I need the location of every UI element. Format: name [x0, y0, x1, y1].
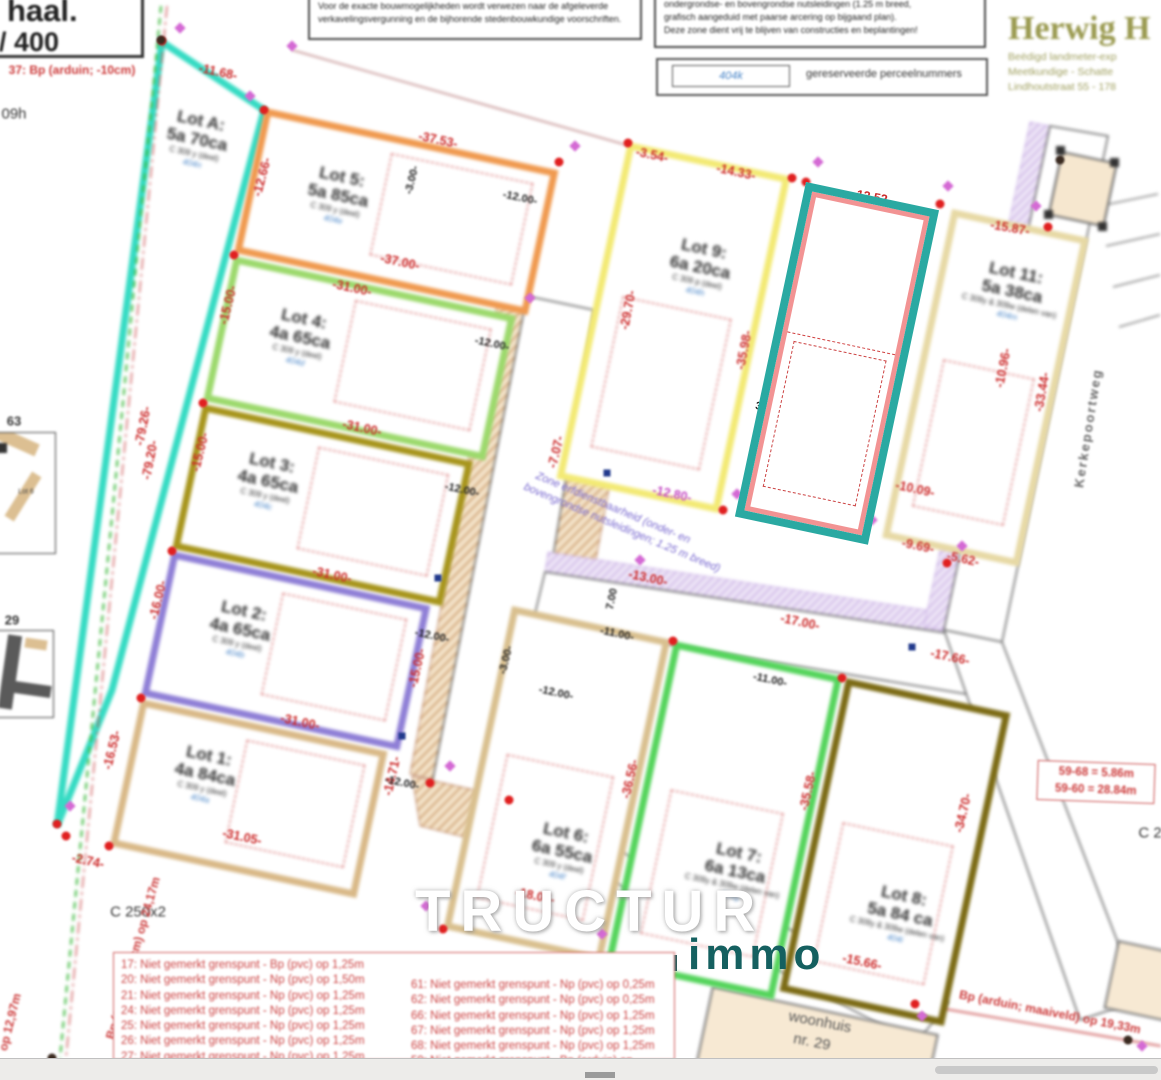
boundary-point-marker: [719, 506, 728, 515]
boundary-point-marker: [137, 694, 146, 703]
legend-row: 20: Niet gemerkt grenspunt - Np (pvc) op…: [121, 973, 365, 988]
building-envelope: [591, 296, 732, 470]
surveyor-line: Meetkundige - Schatte: [1008, 66, 1151, 78]
building-envelope: [913, 359, 1035, 525]
scale-text: haal.: [7, 0, 78, 29]
survey-point-square: [909, 644, 916, 651]
surveyor-line: Lindhoutstraat 55 - 178: [1008, 81, 1151, 93]
surveyor-line: Beëdigd landmeter-exp: [1008, 51, 1151, 63]
boundary-point-marker: [62, 832, 71, 841]
boundary-point-marker: [838, 674, 847, 683]
scrollbar-track-mark: [585, 1072, 615, 1078]
lot-label: Lot 6: 6a 55ca C 309 y (deel) 404f: [526, 817, 598, 887]
note-line: grafisch aangeduid met paarse arcering o…: [664, 11, 976, 24]
measurement-ref-box: 59-68 = 5.86m 59-60 = 28.84m: [1036, 760, 1155, 804]
parking-marks: [1100, 194, 1160, 327]
watermark-immo-text: immo: [688, 930, 825, 980]
legend-row: 24: Niet gemerkt grenspunt - Np (pvc) op…: [121, 1004, 365, 1019]
boundary-point-marker: [260, 106, 269, 115]
lot-label: Lot 9: 6a 20ca C 309 p (deel) 404h: [664, 233, 736, 303]
horizontal-scrollbar-thumb[interactable]: [935, 1066, 1158, 1074]
building-envelope: [297, 447, 449, 576]
legend-row: 68: Niet gemerkt grenspunt - Np (pvc) op…: [411, 1039, 655, 1054]
legend-row: 66: Niet gemerkt grenspunt - Np (pvc) op…: [411, 1009, 655, 1024]
legend-row: 17: Niet gemerkt grenspunt - Bp (pvc) op…: [121, 958, 365, 973]
survey-point-square: [399, 733, 406, 740]
note-line: Deze zone dient vrij te blijven van cons…: [664, 24, 976, 37]
plan-text: 63: [7, 414, 21, 429]
boundary-point-marker: [230, 251, 239, 260]
survey-point-square: [435, 575, 442, 582]
building-envelope: [225, 740, 365, 868]
survey-point-square: [604, 470, 611, 477]
boundary-point-marker: [199, 399, 208, 408]
boundary-point-marker: [624, 139, 633, 148]
lot-label: Lot 5: 5a 85ca C 309 y (deel) 404e: [302, 161, 374, 231]
plan-text: 09h: [1, 106, 26, 123]
note-line: verkavelingsvergunning en de bijhorende …: [318, 13, 632, 26]
boundary-point-marker: [669, 637, 678, 646]
boundary-point-marker: [788, 174, 797, 183]
building-envelope: [261, 593, 407, 721]
legend-column-left: 17: Niet gemerkt grenspunt - Bp (pvc) op…: [121, 958, 365, 1060]
lot-label: Lot 2: 4a 65ca C 309 y (deel) 404b: [204, 595, 276, 665]
scale-value: / 400: [0, 27, 59, 58]
legend-row: 21: Niet gemerkt grenspunt - Np (pvc) op…: [121, 989, 365, 1004]
legend-box: 17: Niet gemerkt grenspunt - Bp (pvc) op…: [113, 952, 675, 1060]
reserved-number-label: gereserveerde perceelnummers: [806, 68, 962, 80]
plan-text: 29: [5, 613, 19, 628]
cadastral-plan: -11.68--37.53--37.00--12.66--3.54--14.33…: [0, 0, 1161, 1080]
reserved-numbers-box: 404k gereserveerde perceelnummers: [656, 58, 988, 96]
note-box-utilities: ondergrondse- en bovengrondse nutsleidin…: [654, 0, 986, 48]
legend-row: 61: Niet gemerkt grenspunt - Np (pvc) op…: [411, 978, 655, 993]
boundary-point-marker: [936, 200, 945, 209]
legend-row: 67: Niet gemerkt grenspunt - Np (pvc) op…: [411, 1024, 655, 1039]
boundary-point-marker: [105, 842, 114, 851]
building-envelope: [763, 341, 886, 506]
boundary-point-marker: [168, 547, 177, 556]
plan-text: C 2: [1138, 825, 1161, 842]
surveyor-block: Herwig H Beëdigd landmeter-exp Meetkundi…: [1008, 10, 1151, 93]
benchmark-dot: [1056, 156, 1065, 165]
legend-column-right: 61: Niet gemerkt grenspunt - Np (pvc) op…: [411, 978, 655, 1060]
boundary-point-marker: [943, 559, 952, 568]
boundary-point-marker: [53, 820, 62, 829]
measurement-ref-line: 59-60 = 28.84m: [1037, 780, 1154, 801]
boundary-point-marker: [505, 796, 514, 805]
legend-row: 26: Niet gemerkt grenspunt - Np (pvc) op…: [121, 1034, 365, 1049]
boundary-point-marker: [555, 158, 564, 167]
inset-detail-29: [0, 630, 54, 718]
boundary-point-marker: [426, 779, 435, 788]
note-box-building: Voor de exacte bouwmogelijkheden wordt v…: [308, 0, 642, 40]
plan-text: Lot 6: [18, 489, 34, 496]
note-line: Voor de exacte bouwmogelijkheden wordt v…: [318, 0, 632, 13]
lot-label: Lot 4: 4a 65ca C 309 y (deel) 404d: [264, 303, 336, 373]
legend-row: 62: Niet gemerkt grenspunt - Np (pvc) op…: [411, 993, 655, 1008]
legend-row: 25: Niet gemerkt grenspunt - Np (pvc) op…: [121, 1019, 365, 1034]
note-line: ondergrondse- en bovengrondse nutsleidin…: [664, 0, 976, 11]
lot-label: Lot 3: 4a 65ca C 309 y (deel) 404c: [232, 447, 304, 517]
plan-text: 37: Bp (arduin; -10cm): [9, 63, 136, 77]
lot-label: Lot A: 5a 70ca C 309 y (deel) 404n: [161, 105, 233, 175]
lot-label: Lot 1: 4a 84ca C 309 y (deel) 404a: [169, 740, 241, 810]
reserved-number-sample: 404k: [672, 65, 790, 87]
building-envelope: [333, 300, 491, 430]
scale-box: haal. / 400: [0, 0, 144, 58]
boundary-point-marker: [1044, 223, 1053, 232]
benchmark-dot: [1124, 1036, 1133, 1045]
benchmark-dot: [157, 36, 166, 45]
boundary-point-marker: [911, 1000, 920, 1009]
surveyor-name: Herwig H: [1008, 10, 1151, 48]
